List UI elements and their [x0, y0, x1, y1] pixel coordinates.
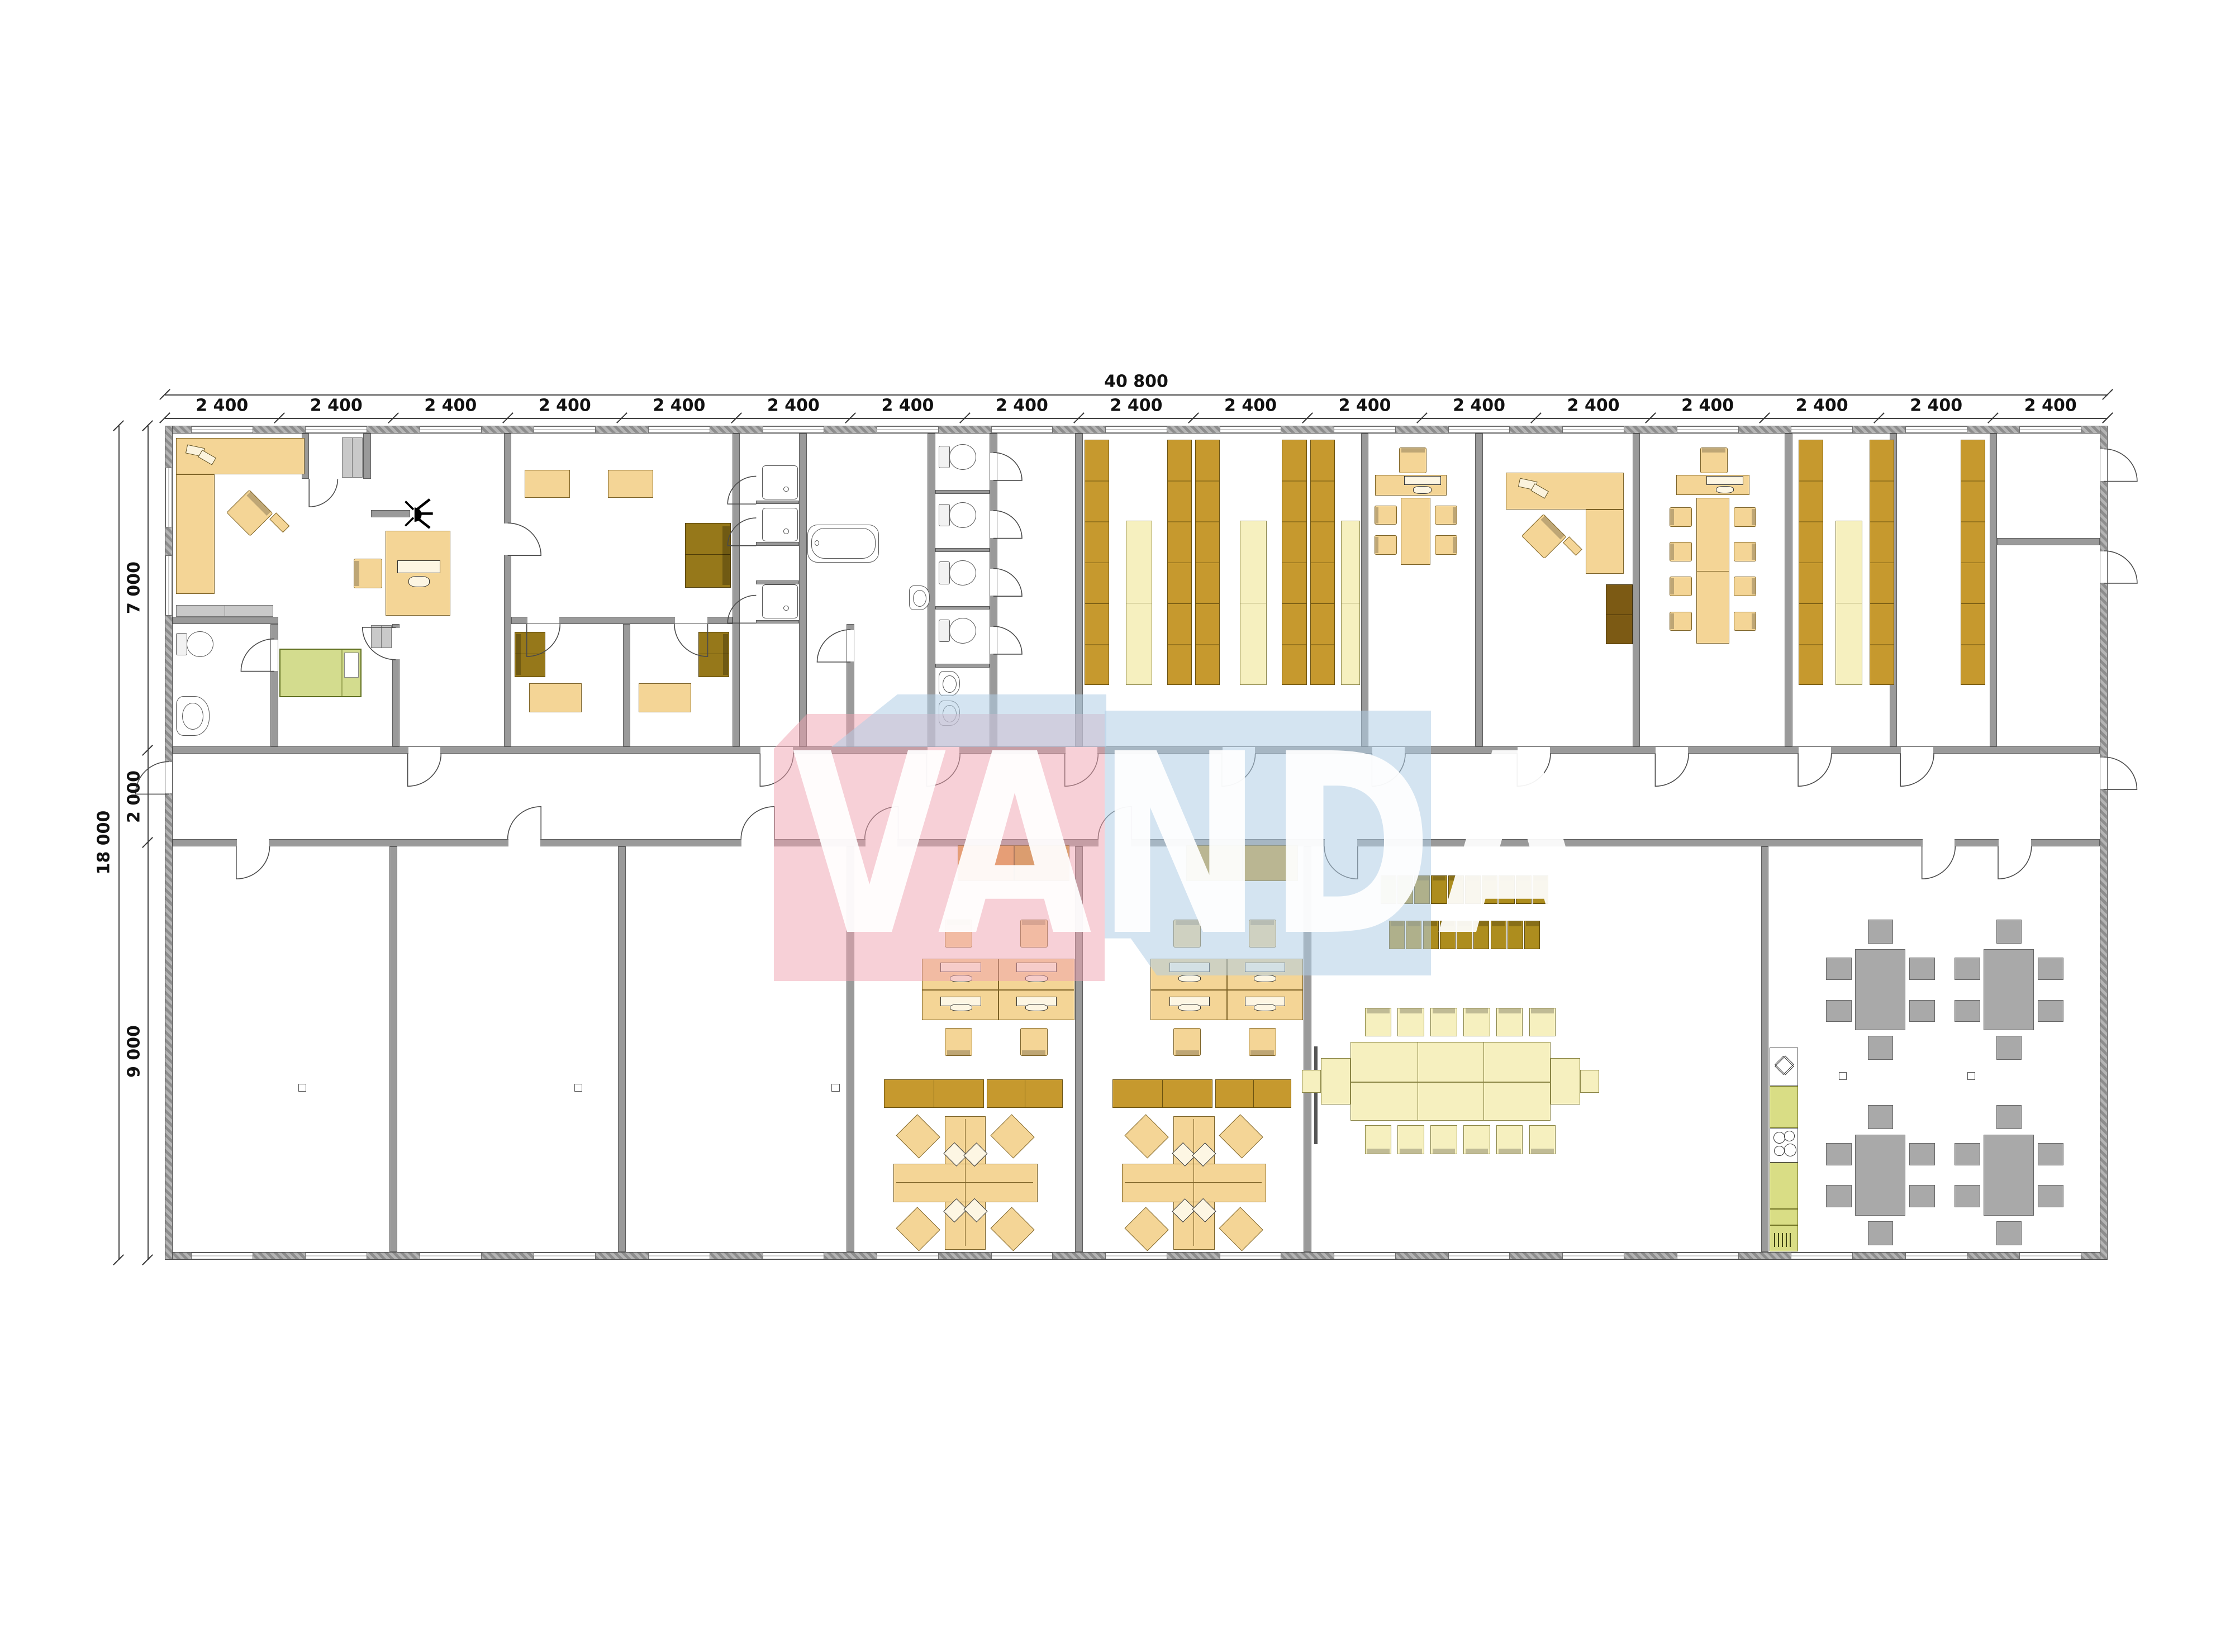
dim-bay-label: 2 400 — [1110, 396, 1163, 416]
dim-left-segment: 2 000 — [125, 770, 144, 823]
door — [1798, 754, 1832, 786]
door — [1900, 754, 1934, 786]
door — [727, 596, 756, 623]
dim-left-segment: 7 000 — [125, 561, 144, 614]
dim-bay-label: 2 400 — [1567, 396, 1620, 416]
dim-line — [165, 394, 2108, 396]
dim-line — [165, 418, 2108, 419]
door — [363, 627, 396, 660]
door — [2104, 757, 2137, 789]
door — [408, 754, 441, 786]
door — [1655, 754, 1689, 786]
door — [727, 518, 756, 546]
door — [527, 624, 560, 656]
dim-bay-label: 2 400 — [1796, 396, 1848, 416]
door — [241, 639, 274, 672]
dim-bay-label: 2 400 — [539, 396, 591, 416]
dim-bay-label: 2 400 — [310, 396, 363, 416]
dim-bay-label: 2 400 — [196, 396, 248, 416]
door — [1998, 846, 2032, 879]
dim-bay-label: 2 400 — [996, 396, 1048, 416]
door — [508, 807, 541, 839]
door — [2104, 551, 2137, 583]
door — [2104, 449, 2137, 482]
door — [727, 476, 756, 504]
dim-left-segment: 9 000 — [125, 1025, 144, 1078]
door — [1922, 846, 1956, 879]
dim-bay-label: 2 400 — [1224, 396, 1277, 416]
door — [741, 807, 774, 839]
dim-bay-label: 2 400 — [1910, 396, 1962, 416]
door — [508, 523, 541, 555]
door — [993, 626, 1022, 654]
dim-bay-label: 2 400 — [1453, 396, 1505, 416]
dim-bay-label: 2 400 — [881, 396, 934, 416]
dim-line — [118, 426, 120, 1260]
door — [309, 479, 337, 507]
door — [817, 630, 851, 662]
watermark-text: VANDA — [792, 724, 1596, 968]
dim-bay-label: 2 400 — [424, 396, 477, 416]
floor-plan: VANDA 40 8002 4002 4002 4002 4002 4002 4… — [0, 0, 2235, 1652]
door — [236, 846, 270, 879]
dim-bay-label: 2 400 — [767, 396, 820, 416]
dim-bay-label: 2 400 — [1681, 396, 1734, 416]
door — [993, 511, 1022, 539]
door — [674, 624, 708, 656]
dim-bay-label: 2 400 — [2024, 396, 2077, 416]
door — [993, 568, 1022, 596]
dim-total-height: 18 000 — [94, 811, 114, 875]
dim-bay-label: 2 400 — [1339, 396, 1391, 416]
door — [993, 453, 1022, 480]
dim-total-width: 40 800 — [1104, 372, 1168, 392]
dim-bay-label: 2 400 — [653, 396, 705, 416]
